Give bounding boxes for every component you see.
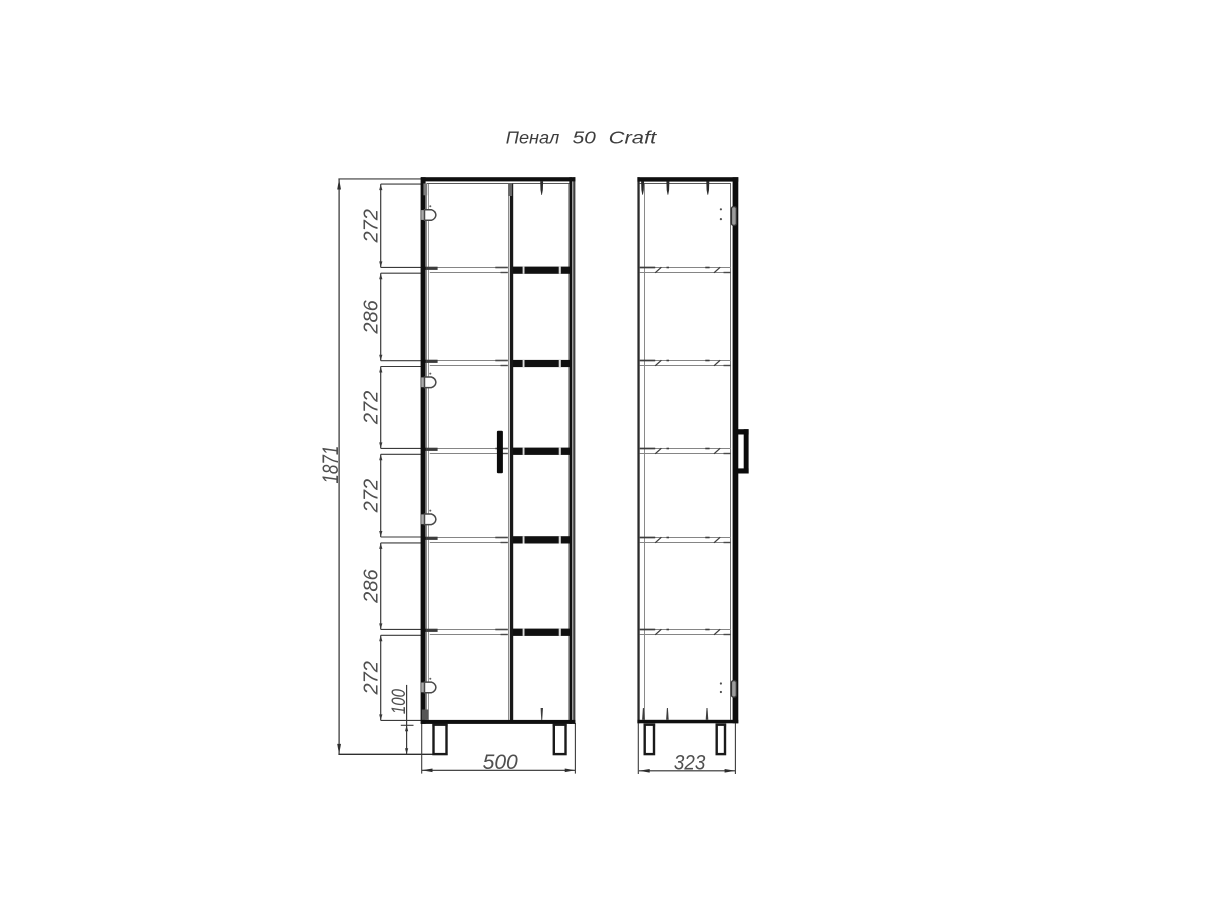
svg-text:323: 323 xyxy=(674,750,705,774)
svg-text:500: 500 xyxy=(483,750,518,774)
svg-text:Craft: Craft xyxy=(609,127,658,147)
svg-text:50: 50 xyxy=(573,127,597,147)
svg-text:286: 286 xyxy=(361,299,383,334)
svg-text:272: 272 xyxy=(361,391,383,426)
svg-text:272: 272 xyxy=(361,209,383,244)
svg-text:100: 100 xyxy=(389,689,410,714)
svg-text:272: 272 xyxy=(361,661,383,696)
svg-text:1871: 1871 xyxy=(318,446,343,484)
svg-text:272: 272 xyxy=(361,479,383,514)
svg-text:286: 286 xyxy=(361,568,383,603)
svg-text:Пенал: Пенал xyxy=(506,127,560,147)
